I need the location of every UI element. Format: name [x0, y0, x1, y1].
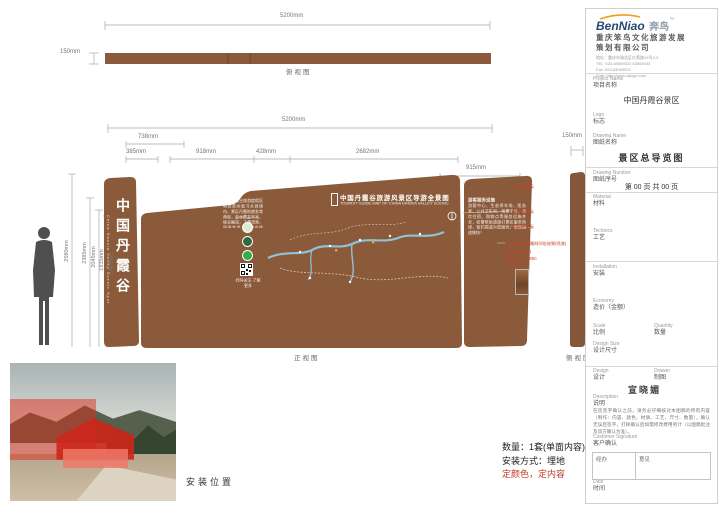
dim-front-5200: 5200mm: [282, 117, 305, 123]
field-installation: Installation 安装: [593, 265, 617, 278]
caption-top-view: 俯视图: [286, 66, 312, 76]
project-value: 中国丹霞谷景区: [586, 95, 717, 106]
human-scale-silhouette: [33, 227, 55, 345]
board-subtitle: TOURIST GUIDE MAP OF CHINA DANXIA VALLEY…: [340, 201, 460, 207]
dim-side-150: 150mm: [562, 133, 582, 139]
dim-height-2385: 2385mm: [82, 233, 88, 273]
field-technics: Technics 工艺: [593, 229, 612, 242]
top-view-bar: [105, 53, 491, 64]
dim-738: 738mm: [138, 134, 158, 140]
annotation-steel-4mm: 4mm厚钢板: [512, 184, 534, 190]
field-project-name: Project Name 项目名称: [593, 77, 623, 90]
dim-428: 428mm: [256, 149, 276, 155]
dim-915: 915mm: [466, 165, 486, 171]
note-confirm-red: 定颜色，定内容: [502, 468, 585, 482]
company-line2: 策划有限公司: [596, 43, 708, 53]
description-text: 在您签字确认之前，请务必仔细核对本图稿的所有内容（制作：内容、颜色、材质、工艺、…: [593, 408, 710, 436]
field-drawing-name: Drawing Name 图纸名称: [593, 134, 626, 147]
dim-918: 918mm: [196, 149, 216, 155]
field-design: Design 设计: [593, 369, 609, 382]
eco-badge-icon: [242, 222, 253, 233]
dim-height-2580: 2580mm: [64, 231, 70, 271]
caption-front-view: 正视图: [294, 352, 320, 362]
field-customer-signature: Customer Signature 客户确认: [593, 435, 637, 448]
note-install-method: 安装方式：埋地: [502, 455, 585, 469]
dim-height-2045: 2045mm: [91, 237, 97, 277]
slab-title-english: China Danxia Valley Scenic Spot: [106, 215, 111, 335]
annotation-aged: (做旧处理): [506, 262, 526, 268]
cell-handler-label: 经办: [596, 455, 607, 463]
cell-divider: [635, 453, 636, 479]
note-quantity: 数量：1套(单面内容): [502, 441, 585, 455]
designer-stamp: 宣晓媚: [628, 383, 661, 396]
dim-topview-150: 150mm: [60, 49, 80, 55]
annotation-engraving: 1.5cm厚内容雕刻凹陷效果(喷漆): [506, 241, 566, 247]
page-count: 第 00 页 共 00 页: [586, 182, 717, 192]
title-seal-icon: [331, 193, 338, 206]
services-heading: 游客服务设施: [468, 197, 526, 203]
title-block: BenNiao 奔鸟™ 重庆笨鸟文化旅游发展 策划有限公司 地址：重庆市渝北区红…: [585, 8, 718, 504]
annotation-steel-6mm: 6mm厚钢板: [512, 209, 534, 215]
cell-opinion-label: 意见: [639, 455, 650, 463]
install-location-photo: [10, 363, 176, 501]
qr-pattern: [241, 264, 252, 275]
brand-swoosh-icon: [598, 13, 642, 20]
company-line1: 重庆笨鸟文化旅游发展: [596, 33, 708, 43]
sign-side-view: [570, 172, 585, 347]
photo-caption: 安装位置: [186, 475, 234, 488]
drawing-name-value: 景区总导览图: [586, 151, 717, 164]
intro-heading: 景区简介: [223, 192, 263, 198]
field-logo: Logo 标志: [593, 113, 605, 126]
qr-caption: 扫码关注·了解更多: [234, 278, 262, 288]
trademark-symbol: ™: [669, 17, 674, 23]
dim-topview-5200: 5200mm: [280, 13, 303, 19]
annotation-finish: 表面颜色做旧: [506, 249, 531, 255]
dim-385: 385mm: [126, 149, 146, 155]
qr-code: [240, 263, 253, 276]
dim-2682: 2682mm: [356, 149, 379, 155]
company-name: 重庆笨鸟文化旅游发展 策划有限公司: [596, 33, 708, 53]
brand-name-cn: 奔鸟: [649, 22, 669, 33]
field-drawer: Drawer 制图: [654, 369, 670, 382]
field-scale: Scale 比例: [593, 324, 606, 337]
signature-cells: 经办 意见: [592, 452, 711, 480]
forest-badge-icon: [242, 236, 253, 247]
field-quantity: Quantity 数量: [654, 324, 673, 337]
annotation-steel-8mm: 8mm厚钢板: [512, 224, 534, 230]
field-economy: Economy 造价（金额）: [593, 299, 629, 312]
annotation-pantone: PANTONE 469C: [506, 256, 537, 261]
color-swatch: [515, 269, 529, 295]
field-design-size: Design Size 设计尺寸: [593, 342, 620, 355]
field-description: Description 说明: [593, 395, 618, 408]
photo-red-building-wall: [63, 449, 128, 468]
production-notes: 数量：1套(单面内容) 安装方式：埋地 定颜色，定内容: [502, 441, 585, 482]
green-badge-icon: [242, 250, 253, 261]
slab-title-vertical: 中国丹霞谷: [112, 198, 132, 343]
brand-name: BenNiao: [596, 19, 645, 33]
dim-height-1935: 1935mm: [99, 240, 105, 280]
field-date: Date 时间: [593, 480, 605, 493]
drawing-sheet: 5200mm 150mm 俯视图 5200mm 738mm 385mm 918m…: [0, 0, 720, 509]
field-material: Material 材料: [593, 195, 611, 208]
